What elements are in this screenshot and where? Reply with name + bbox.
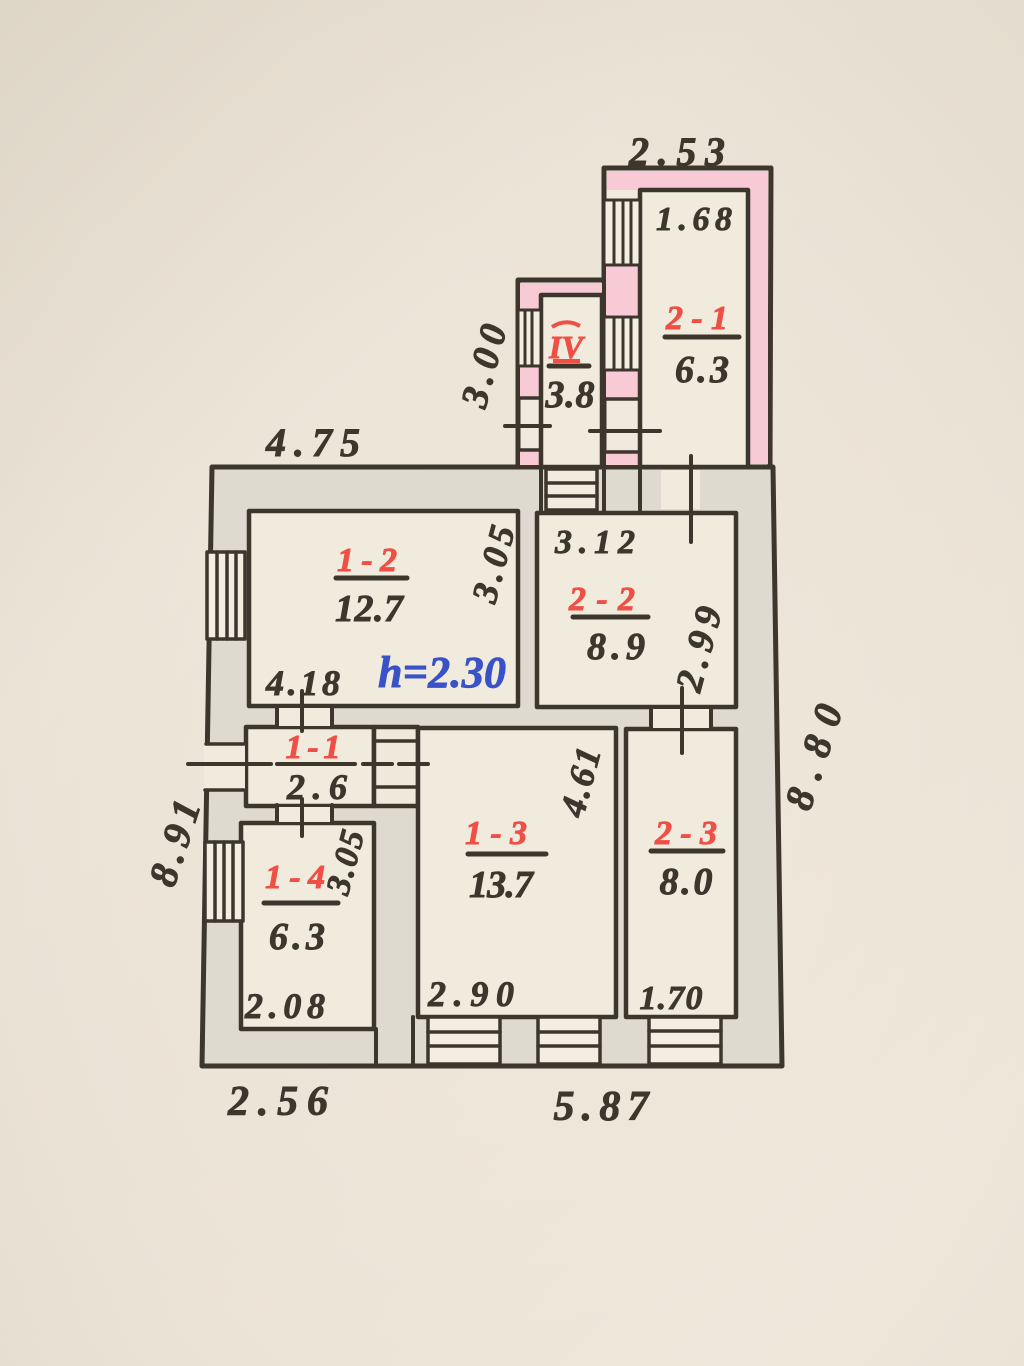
svg-text:1.70: 1.70 (640, 980, 703, 1017)
svg-text:4.75: 4.75 (265, 420, 360, 465)
svg-text:2.53: 2.53 (628, 129, 725, 174)
svg-text:1.68: 1.68 (656, 201, 732, 238)
svg-text:1-2: 1-2 (337, 542, 397, 579)
svg-text:1-1: 1-1 (286, 729, 341, 766)
svg-text:1-3: 1-3 (465, 815, 527, 852)
svg-text:2-2: 2-2 (568, 581, 635, 618)
svg-text:8.9: 8.9 (587, 626, 645, 668)
svg-text:8.0: 8.0 (660, 861, 713, 903)
svg-text:6.3: 6.3 (269, 916, 325, 958)
svg-text:2.56: 2.56 (227, 1079, 328, 1125)
svg-text:12.7: 12.7 (335, 588, 405, 630)
svg-text:3.12: 3.12 (554, 524, 635, 561)
svg-text:2-3: 2-3 (654, 815, 717, 852)
svg-text:2.90: 2.90 (427, 974, 514, 1014)
svg-text:13.7: 13.7 (469, 864, 535, 906)
svg-text:6.3: 6.3 (675, 349, 729, 391)
svg-text:3.8: 3.8 (545, 374, 595, 416)
svg-text:2-1: 2-1 (665, 300, 728, 337)
svg-text:5.87: 5.87 (554, 1084, 651, 1130)
svg-text:4.18: 4.18 (265, 663, 340, 703)
svg-text:2.6: 2.6 (286, 767, 347, 807)
svg-text:1-4: 1-4 (265, 859, 325, 896)
svg-text:2.08: 2.08 (244, 986, 325, 1026)
svg-text:h=2.30: h=2.30 (378, 648, 506, 697)
